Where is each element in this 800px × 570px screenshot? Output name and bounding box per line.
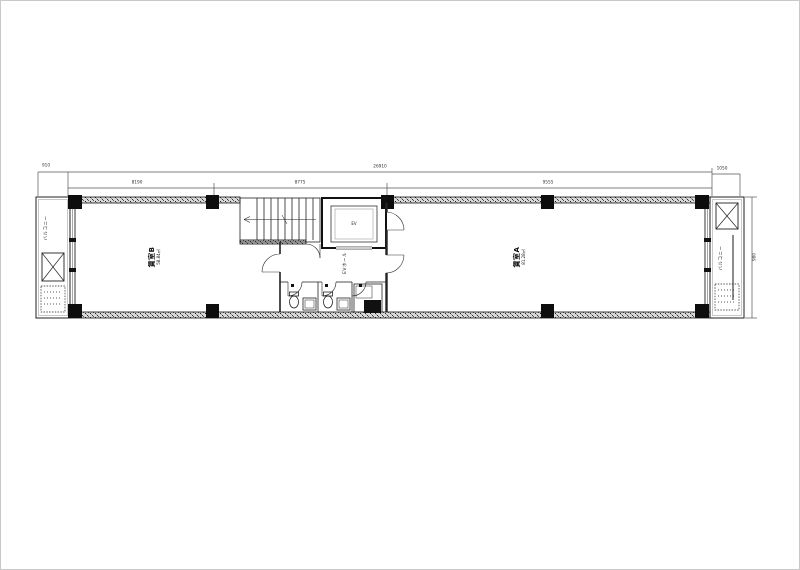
room-a-label: 賃室A 81.28㎡ bbox=[514, 247, 526, 268]
room-a-area: 81.28㎡ bbox=[522, 249, 526, 264]
floor-plan-drawing bbox=[0, 0, 800, 570]
dim-depth: 980 bbox=[753, 253, 757, 261]
room-b-name: 賃室B bbox=[149, 247, 156, 268]
floor-plan-sheet: 賃室B 58.84㎡ 賃室A 81.28㎡ EVホール EV バルコニー バルコ… bbox=[0, 0, 800, 570]
hatch-dotted-box-icon bbox=[41, 286, 65, 312]
sink-icon bbox=[303, 298, 316, 310]
dim-seg1: 8190 bbox=[132, 181, 143, 185]
ev-label: EV bbox=[351, 222, 356, 226]
equipment-xbox-icon bbox=[42, 253, 64, 281]
pipe-shaft bbox=[354, 284, 382, 313]
dim-right-offset: 1050 bbox=[717, 167, 728, 171]
dimension-lines bbox=[38, 168, 757, 318]
balcony-left-label: バルコニー bbox=[45, 216, 50, 241]
hatch-dotted-box-icon bbox=[715, 284, 739, 310]
equipment-xbox-icon bbox=[716, 203, 738, 229]
sink-icon bbox=[337, 298, 350, 310]
toilet-block bbox=[280, 282, 386, 313]
columns bbox=[68, 195, 709, 318]
dim-seg2: 8775 bbox=[295, 181, 306, 185]
room-a-name: 賃室A bbox=[514, 247, 521, 268]
dim-seg3: 9555 bbox=[543, 181, 554, 185]
balcony-left bbox=[36, 197, 70, 318]
dim-total: 26910 bbox=[373, 165, 387, 169]
dim-left-offset: 910 bbox=[42, 164, 50, 168]
room-b-area: 58.84㎡ bbox=[157, 249, 161, 264]
room-b-label: 賃室B 58.84㎡ bbox=[149, 247, 161, 268]
balcony-right bbox=[710, 197, 744, 318]
walls bbox=[70, 197, 710, 318]
window-wall-left bbox=[69, 203, 76, 312]
ev-hall-label: EVホール bbox=[344, 252, 349, 274]
window-wall-right bbox=[704, 203, 711, 312]
balcony-right-label: バルコニー bbox=[720, 246, 725, 271]
